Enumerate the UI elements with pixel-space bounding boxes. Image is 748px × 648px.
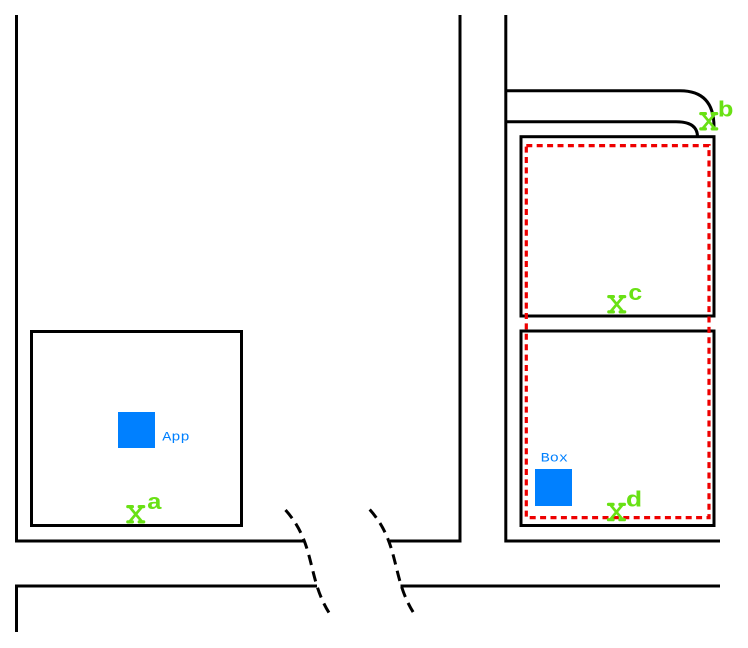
svg-text:Box: Box [541, 451, 568, 466]
svg-text:d: d [626, 489, 642, 514]
svg-text:b: b [718, 99, 734, 123]
svg-text:a: a [147, 492, 163, 517]
svg-text:App: App [162, 430, 189, 445]
svg-text:c: c [628, 282, 643, 307]
